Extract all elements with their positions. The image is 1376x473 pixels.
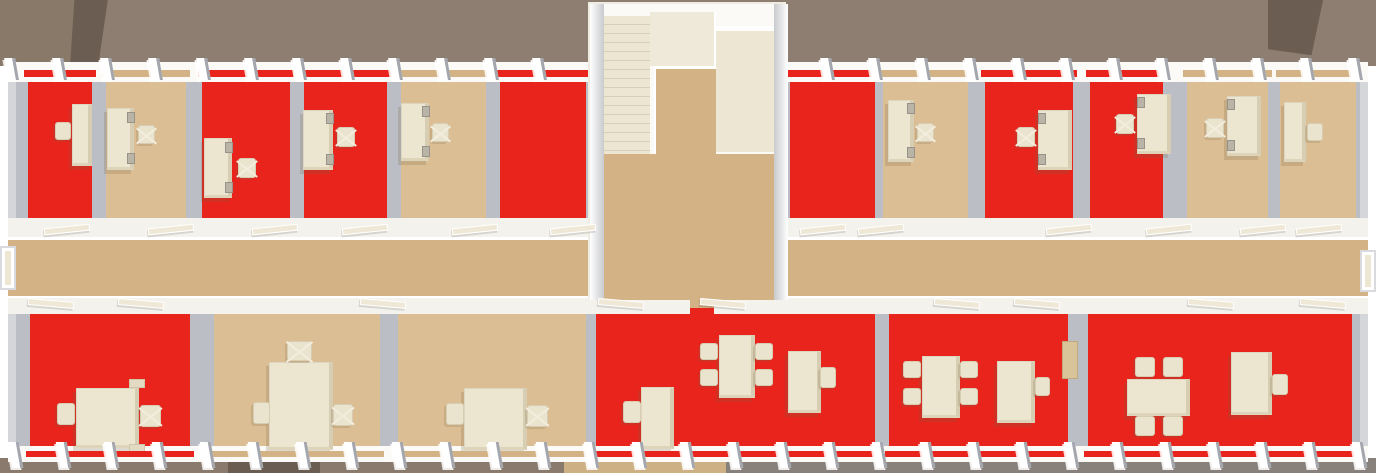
monitor (1038, 154, 1046, 165)
meeting-table (1127, 379, 1190, 416)
office-chair (138, 125, 155, 144)
meeting-table (922, 356, 960, 418)
chair (903, 361, 921, 378)
bench (129, 379, 145, 388)
chair (1272, 374, 1288, 395)
window-sill (1276, 70, 1360, 77)
chair (700, 343, 718, 360)
room-floor-office-7 (790, 82, 875, 218)
monitor (422, 146, 430, 157)
chair (1163, 416, 1183, 436)
monitor (907, 147, 915, 158)
office-chair (238, 158, 256, 178)
chair (55, 122, 71, 140)
desk (788, 351, 821, 413)
chair (1135, 416, 1155, 436)
chair (57, 403, 75, 425)
stairwell (588, 2, 786, 298)
office-chair (527, 405, 548, 427)
monitor (907, 103, 915, 114)
desk (641, 387, 674, 449)
office-chair (432, 123, 449, 142)
chair (253, 402, 270, 424)
desk (997, 361, 1035, 423)
monitor (1038, 113, 1046, 124)
corridor-bottom-wall-left (8, 296, 690, 314)
monitor (326, 113, 334, 124)
office-chair (333, 404, 353, 426)
chair (700, 369, 718, 386)
meeting-table (464, 388, 527, 450)
desk (1284, 102, 1306, 162)
desk (1231, 352, 1272, 415)
chair (960, 388, 978, 405)
monitor (326, 154, 334, 165)
chair (903, 388, 921, 405)
chair (820, 367, 836, 388)
stairwell-landing (716, 26, 774, 152)
window-sill (102, 70, 190, 77)
office-chair (287, 341, 312, 361)
stairwell-right-wall (774, 4, 788, 300)
chair (623, 401, 641, 423)
chair (960, 361, 978, 378)
monitor (127, 112, 135, 123)
monitor (1227, 140, 1235, 151)
stairwell-upper-wall (650, 12, 716, 66)
entrance-door-left (0, 246, 16, 290)
chair (1135, 357, 1155, 377)
chair (1307, 123, 1323, 141)
office-chair (337, 127, 355, 147)
floorplan-scene (0, 0, 1376, 473)
entrance-door-right (1360, 250, 1376, 292)
chair (446, 403, 464, 425)
meeting-table (76, 388, 139, 448)
monitor (422, 106, 430, 117)
window-sill (1086, 70, 1167, 77)
chair (1163, 357, 1183, 377)
stairwell-floor (604, 154, 774, 300)
office-chair (1116, 114, 1134, 134)
chair (755, 369, 773, 386)
monitor (1137, 97, 1145, 108)
office-chair (140, 405, 161, 427)
stairwell-mid-column (654, 66, 716, 154)
office-chair (1017, 127, 1035, 147)
monitor (225, 142, 233, 153)
stairwell-left-wall (590, 4, 604, 300)
meeting-table (269, 362, 333, 450)
monitor (225, 182, 233, 193)
meeting-table (719, 335, 755, 398)
corridor-gap-threshold (690, 308, 714, 314)
entrance-door-leaf (5, 251, 11, 285)
chair (755, 343, 773, 360)
entrance-door-leaf (1365, 255, 1371, 287)
chair (1035, 377, 1050, 396)
monitor (1137, 138, 1145, 149)
office-chair (1206, 118, 1224, 138)
stairs-flight (604, 16, 650, 154)
office-chair (917, 123, 934, 142)
desk (72, 104, 92, 166)
monitor (1227, 99, 1235, 110)
room-floor-office-6 (500, 82, 586, 218)
monitor (127, 153, 135, 164)
cabinet (1062, 341, 1078, 379)
